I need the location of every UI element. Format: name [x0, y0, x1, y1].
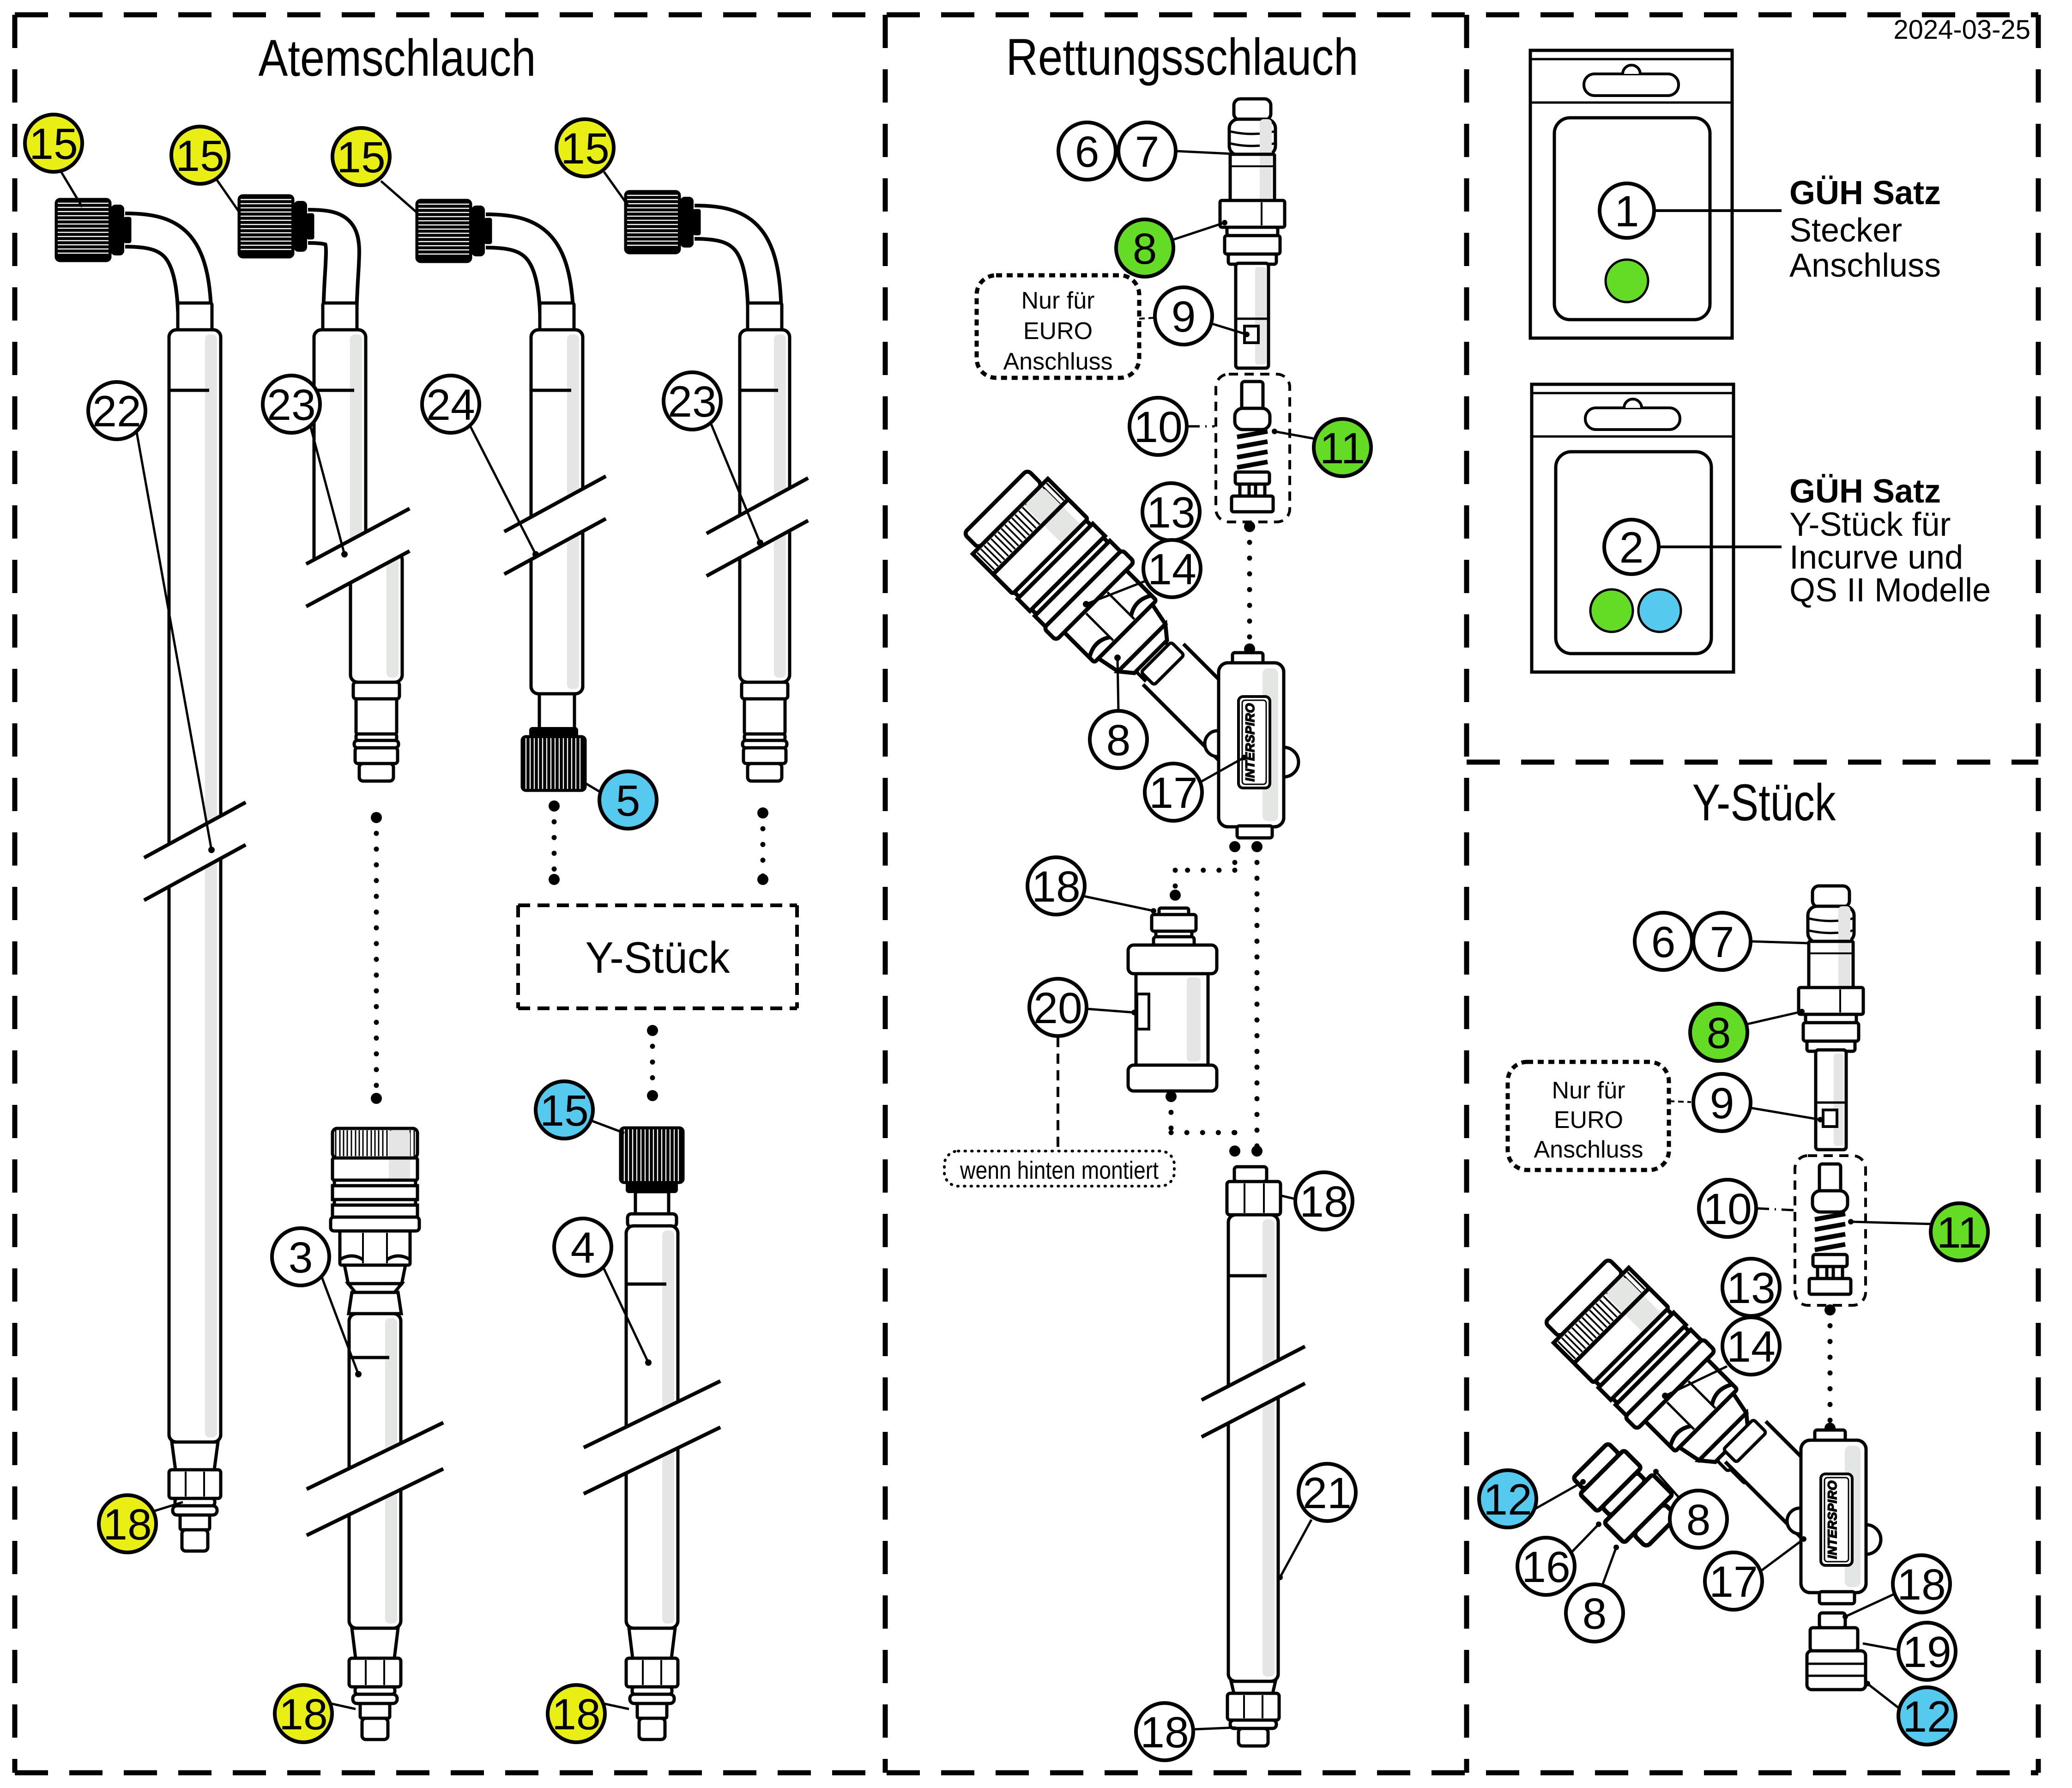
svg-text:Y-Stück: Y-Stück: [1692, 774, 1836, 831]
svg-text:17: 17: [1709, 1558, 1758, 1606]
svg-text:23: 23: [668, 377, 717, 426]
svg-text:14: 14: [1727, 1322, 1776, 1371]
svg-text:EURO: EURO: [1554, 1107, 1623, 1133]
svg-text:wenn hinten montiert: wenn hinten montiert: [960, 1157, 1159, 1184]
svg-text:13: 13: [1147, 488, 1196, 537]
svg-text:GÜH Satz: GÜH Satz: [1789, 473, 1941, 510]
svg-text:15: 15: [561, 124, 610, 173]
svg-text:12: 12: [1483, 1475, 1532, 1524]
svg-text:22: 22: [92, 387, 141, 436]
svg-text:GÜH Satz: GÜH Satz: [1789, 175, 1941, 212]
svg-text:EURO: EURO: [1023, 318, 1093, 345]
svg-text:Incurve und: Incurve und: [1789, 539, 1963, 576]
svg-text:13: 13: [1727, 1264, 1776, 1313]
svg-text:10: 10: [1134, 403, 1183, 452]
svg-text:7: 7: [1135, 127, 1160, 176]
svg-text:INTERSPIRO: INTERSPIRO: [1243, 703, 1257, 782]
svg-text:18: 18: [103, 1500, 152, 1549]
svg-text:18: 18: [552, 1690, 601, 1739]
svg-text:18: 18: [1897, 1560, 1946, 1609]
svg-text:11: 11: [1320, 424, 1365, 473]
svg-text:6: 6: [1075, 127, 1099, 176]
svg-text:15: 15: [337, 133, 386, 182]
svg-text:5: 5: [616, 776, 640, 825]
svg-text:11: 11: [1937, 1208, 1982, 1257]
svg-text:7: 7: [1710, 918, 1734, 967]
svg-text:1: 1: [1615, 187, 1639, 236]
svg-text:Y-Stück für: Y-Stück für: [1789, 506, 1951, 543]
svg-text:19: 19: [1903, 1628, 1951, 1677]
svg-text:2024-03-25: 2024-03-25: [1893, 15, 2030, 45]
svg-text:9: 9: [1710, 1079, 1734, 1128]
svg-text:Anschluss: Anschluss: [1534, 1136, 1643, 1163]
svg-text:17: 17: [1149, 769, 1198, 818]
svg-text:20: 20: [1033, 984, 1082, 1033]
svg-text:21: 21: [1303, 1469, 1352, 1518]
svg-text:3: 3: [289, 1233, 313, 1282]
svg-text:Nur für: Nur für: [1552, 1077, 1625, 1104]
svg-text:6: 6: [1651, 918, 1676, 967]
svg-text:24: 24: [426, 381, 475, 430]
svg-text:Atemschlauch: Atemschlauch: [259, 29, 536, 87]
svg-text:4: 4: [571, 1224, 595, 1273]
svg-text:9: 9: [1172, 292, 1196, 341]
svg-text:Stecker: Stecker: [1789, 212, 1902, 249]
svg-text:Y-Stück: Y-Stück: [586, 933, 731, 982]
svg-text:18: 18: [1140, 1708, 1189, 1757]
svg-text:Anschluss: Anschluss: [1789, 247, 1941, 284]
svg-text:18: 18: [279, 1690, 328, 1739]
svg-text:Rettungsschlauch: Rettungsschlauch: [1006, 28, 1359, 86]
svg-text:Nur für: Nur für: [1021, 287, 1095, 314]
svg-text:8: 8: [1583, 1589, 1607, 1638]
svg-text:23: 23: [267, 381, 316, 430]
svg-text:QS II Modelle: QS II Modelle: [1789, 572, 1991, 609]
svg-text:8: 8: [1686, 1496, 1711, 1545]
svg-text:18: 18: [1032, 862, 1081, 911]
svg-text:15: 15: [540, 1086, 589, 1135]
svg-text:8: 8: [1106, 716, 1131, 765]
svg-text:18: 18: [1299, 1177, 1348, 1226]
svg-text:2: 2: [1619, 523, 1644, 572]
svg-text:15: 15: [175, 132, 224, 181]
svg-text:8: 8: [1707, 1009, 1731, 1058]
svg-text:8: 8: [1133, 224, 1157, 273]
svg-text:12: 12: [1903, 1692, 1951, 1741]
svg-text:INTERSPIRO: INTERSPIRO: [1825, 1480, 1839, 1559]
svg-text:14: 14: [1148, 545, 1196, 594]
svg-text:16: 16: [1522, 1543, 1571, 1592]
svg-text:10: 10: [1703, 1185, 1752, 1234]
svg-text:Anschluss: Anschluss: [1003, 348, 1113, 375]
svg-text:15: 15: [29, 120, 78, 169]
